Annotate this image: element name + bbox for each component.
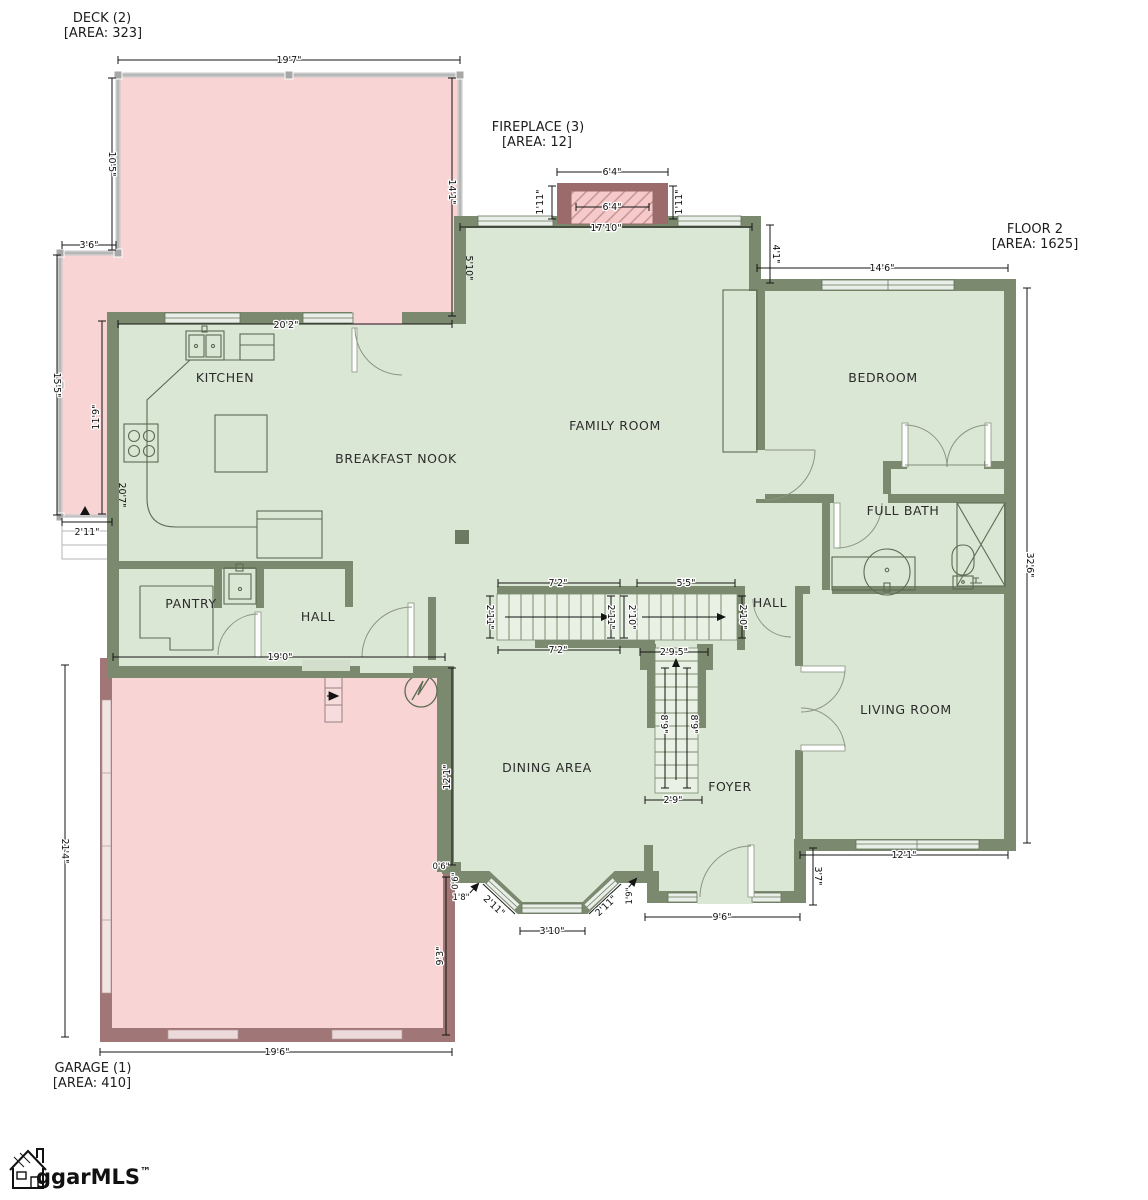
svg-text:4'1": 4'1" <box>770 244 781 263</box>
svg-text:8'9": 8'9" <box>658 714 669 733</box>
structural-column <box>455 530 469 544</box>
room-label-hall-upper: HALL <box>753 595 787 610</box>
room-label-full-bath: FULL BATH <box>867 503 940 518</box>
dim-fireplace-side-right: 1'11" <box>669 186 685 219</box>
svg-text:19'7": 19'7" <box>276 55 301 66</box>
svg-text:0'6": 0'6" <box>432 862 449 872</box>
dim-deck-step: 3'6" <box>62 240 116 251</box>
svg-text:10'5": 10'5" <box>106 151 117 176</box>
dim-bay-step-a: 0'6" <box>432 862 449 872</box>
deck-zone-name: DECK (2) <box>73 11 131 26</box>
garage-vent-right <box>332 1030 402 1039</box>
dim-living-bottom: 12'1" <box>800 850 1008 861</box>
floor2-zone-name: FLOOR 2 <box>1007 222 1063 237</box>
svg-text:2'9": 2'9" <box>663 795 682 806</box>
dim-fireplace-side-left: 1'11" <box>535 186 556 219</box>
dim-right-wall: 32'6" <box>1023 288 1035 843</box>
svg-text:14'1": 14'1" <box>446 179 457 204</box>
dim-kitchen-left-wall: 20'7" <box>116 482 127 507</box>
svg-text:3'6": 3'6" <box>79 240 98 251</box>
dim-entry: 9'6" <box>645 912 800 923</box>
room-label-foyer: FOYER <box>708 779 752 794</box>
dim-garage-left: 21'4" <box>59 665 70 1037</box>
svg-text:2'9.5": 2'9.5" <box>660 647 688 658</box>
svg-text:19'6": 19'6" <box>264 1047 289 1058</box>
svg-text:7'2": 7'2" <box>548 578 567 589</box>
svg-text:12'1": 12'1" <box>891 850 916 861</box>
room-label-living-room: LIVING ROOM <box>860 702 952 717</box>
svg-text:5'10": 5'10" <box>463 255 474 280</box>
garage-zone-name: GARAGE (1) <box>55 1061 132 1076</box>
garage-zone-area: [AREA: 410] <box>53 1076 131 1091</box>
logo: ggarMLS™ <box>10 1149 151 1189</box>
svg-text:2'11": 2'11" <box>74 527 99 538</box>
svg-text:9'3": 9'3" <box>435 946 446 965</box>
svg-text:8'9": 8'9" <box>688 714 699 733</box>
svg-text:2'11": 2'11" <box>484 604 495 629</box>
svg-text:3'7": 3'7" <box>812 866 823 885</box>
room-label-family-room: FAMILY ROOM <box>569 418 661 433</box>
svg-text:11'9": 11'9" <box>91 404 102 429</box>
garage-floor <box>106 665 449 1034</box>
svg-text:19'0": 19'0" <box>267 652 292 663</box>
dim-foyer-side: 3'7" <box>809 848 823 905</box>
svg-text:2'10": 2'10" <box>626 604 637 629</box>
svg-text:1'8": 1'8" <box>452 893 469 903</box>
svg-text:6'4": 6'4" <box>602 202 621 213</box>
svg-text:0'6": 0'6" <box>451 872 461 889</box>
logo-text: ggarMLS™ <box>36 1165 151 1189</box>
dim-deck-top: 19'7" <box>118 55 460 66</box>
fireplace-zone-name: FIREPLACE (3) <box>492 120 584 135</box>
room-label-breakfast-nook: BREAKFAST NOOK <box>335 451 457 466</box>
garage-zone <box>100 658 455 1042</box>
room-label-kitchen: KITCHEN <box>196 370 254 385</box>
room-label-bedroom: BEDROOM <box>848 370 917 385</box>
main-staircase <box>497 594 737 640</box>
deck-zone-area: [AREA: 323] <box>64 26 142 41</box>
svg-text:1'11": 1'11" <box>674 189 685 214</box>
svg-text:32'6": 32'6" <box>1024 552 1035 577</box>
svg-text:5'5": 5'5" <box>676 578 695 589</box>
fireplace-zone-area: [AREA: 12] <box>502 135 572 150</box>
floor-plan-canvas: 19'7" 10'5" 3'6" 15'5" 11'9" 20'7" 2'11"… <box>0 0 1148 1200</box>
svg-text:17'10": 17'10" <box>590 223 621 234</box>
floor-plan-page: 19'7" 10'5" 3'6" 15'5" 11'9" 20'7" 2'11"… <box>0 0 1148 1200</box>
svg-text:1'9": 1'9" <box>625 887 635 904</box>
svg-text:6'4": 6'4" <box>602 167 621 178</box>
svg-text:1'11": 1'11" <box>535 189 546 214</box>
svg-text:20'7": 20'7" <box>116 482 127 507</box>
dim-fireplace-width: 6'4" <box>557 167 668 178</box>
garage-stair <box>325 672 342 722</box>
svg-text:21'4": 21'4" <box>59 838 70 863</box>
deck-steps <box>62 517 113 559</box>
dim-family-left-wall: 5'10" <box>463 255 474 280</box>
svg-text:12'1": 12'1" <box>442 764 453 789</box>
svg-text:3'10": 3'10" <box>539 926 564 937</box>
svg-text:14'6": 14'6" <box>869 263 894 274</box>
room-label-dining-area: DINING AREA <box>502 760 592 775</box>
svg-text:2'11": 2'11" <box>605 604 616 629</box>
dim-family-step: 4'1" <box>766 225 781 283</box>
dim-bay-step-b: 0'6" <box>451 872 461 889</box>
garage-vent-left <box>168 1030 238 1039</box>
floor2-zone-area: [AREA: 1625] <box>992 237 1079 252</box>
svg-text:2'10": 2'10" <box>737 604 748 629</box>
dim-deck-left: 10'5" <box>106 78 117 250</box>
svg-text:7'2": 7'2" <box>548 645 567 656</box>
svg-text:9'6": 9'6" <box>712 912 731 923</box>
dim-bedroom-top: 14'6" <box>757 263 1008 274</box>
room-label-pantry: PANTRY <box>165 596 216 611</box>
svg-text:20'2": 20'2" <box>273 320 298 331</box>
dim-garage-bottom: 19'6" <box>100 1047 452 1058</box>
room-label-hall-lower: HALL <box>301 609 335 624</box>
dim-bay-bottom: 3'10" <box>520 926 585 937</box>
svg-text:15'5": 15'5" <box>51 372 62 397</box>
garage-door-panel <box>102 700 111 993</box>
